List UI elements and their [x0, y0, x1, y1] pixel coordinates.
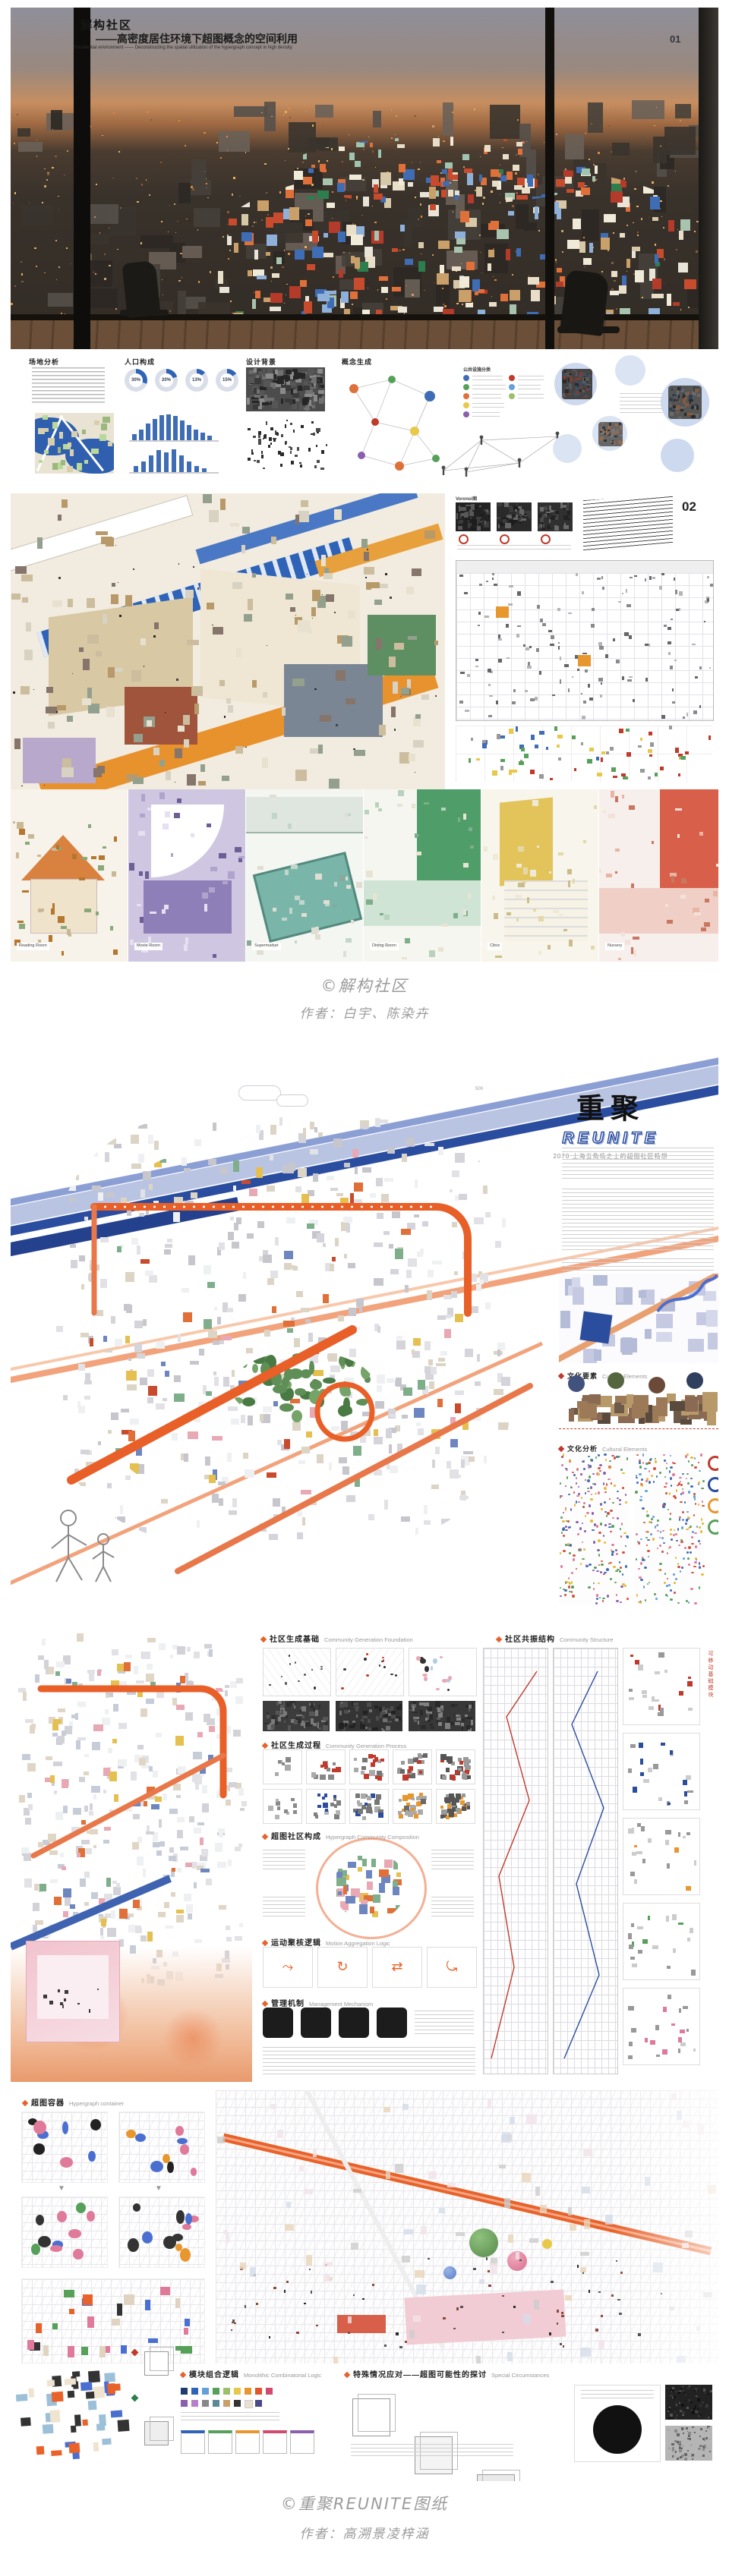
site-map: [35, 413, 114, 474]
growth-sequence-row: [263, 1789, 475, 1824]
section-cultural-analysis: 文化分析: [567, 1445, 598, 1453]
site-text: [32, 367, 105, 404]
project1-board-1[interactable]: 解构社区 ——高密度居住环境下超图概念的空间利用 Residential env…: [11, 8, 718, 486]
texture-tile: [665, 2426, 712, 2461]
gallery-page: 解构社区 ——高密度居住环境下超图概念的空间利用 Residential env…: [0, 0, 729, 2576]
dot-map-2: [635, 1453, 705, 1604]
annotation-stack: [623, 1648, 702, 2073]
donut-15: 15%: [216, 369, 238, 392]
pink-room-vignette: [26, 1941, 120, 2042]
dot-graph-tile: [263, 1648, 331, 1696]
special-cube-tiles: [345, 2388, 535, 2461]
strip-section-concept: 概念生成: [342, 358, 372, 366]
container-step: [21, 2197, 108, 2268]
fiber-texture: [583, 496, 673, 550]
window-mullion: [545, 8, 554, 349]
page-number: 02: [682, 499, 696, 515]
voronoi-label: Voronoi图: [456, 495, 477, 502]
project2-board-3[interactable]: 超图容器Hypergraph container ▼ ▼: [11, 2090, 718, 2481]
interior-panorama: [216, 2090, 718, 2363]
analysis-panel: Voronoi图 02: [450, 493, 718, 789]
project1-caption-title: ©解构社区: [0, 974, 729, 997]
vignette-clinic: Clinic: [481, 789, 598, 962]
age-bar-chart-1: [129, 413, 219, 442]
header-community-structure: 社区共振结构: [505, 1636, 555, 1644]
growth-sequence-row: [263, 1749, 475, 1784]
response-card: [574, 2385, 661, 2462]
dusk-photo: 解构社区 ——高密度居住环境下超图概念的空间利用 Residential env…: [11, 8, 718, 349]
axon-with-watercolor: [11, 1628, 252, 2082]
intro-text: [562, 1148, 714, 1181]
icon-rows: [456, 726, 712, 782]
vignette-dining-room: Dining Room: [364, 789, 481, 962]
window-mullion: [74, 8, 90, 349]
board1-subtitle-en: Residential environment —— Deconstructin…: [74, 46, 292, 50]
motion-tiles: ⤳ ↻ ⇄ ⤿: [263, 1947, 475, 1988]
dot-graph-tile: [336, 1648, 404, 1696]
header-generation-foundation: 社区生成基础: [270, 1636, 320, 1644]
dot-graph-tile: [409, 1648, 477, 1696]
donut-30: 30%: [125, 369, 147, 392]
page-number: 01: [670, 33, 680, 45]
project2-caption-authors: 作者：高溯景凌梓涵: [0, 2523, 729, 2542]
strip-section-site: 场地分析: [29, 358, 59, 366]
facility-legend: 公共设施分类: [463, 366, 547, 427]
module-cube-icon: [144, 2351, 169, 2376]
strip-section-population: 人口构成: [125, 358, 155, 366]
project2-caption-title: ©重聚REUNITE图纸: [0, 2492, 729, 2515]
sketch-figures: [38, 1504, 129, 1586]
board1-subtitle: ——高密度居住环境下超图概念的空间利用: [96, 31, 298, 46]
isometric-illustration: [11, 493, 445, 789]
header-community-composition: 超图社区构成: [271, 1833, 321, 1841]
container-step: [118, 2197, 205, 2268]
texture-tile: [665, 2385, 712, 2420]
analysis-strip: 场地分析 人口构成 30% 20% 13% 15%: [11, 349, 718, 486]
module-cluster: [12, 2367, 132, 2464]
label-special-circumstances: 特殊情况应对——超图可能性的探讨: [353, 2371, 487, 2379]
composition-diagram: [263, 1842, 475, 1930]
header-hypergraph-container: 超图容器: [31, 2099, 65, 2108]
strip-section-background: 设计背景: [246, 358, 276, 366]
module-row: [181, 2430, 340, 2453]
molecule-network: [547, 355, 718, 480]
container-step: [118, 2112, 205, 2183]
label-combinatorial-logic: 模块组合逻辑: [189, 2371, 239, 2379]
donut-20: 20%: [155, 369, 178, 392]
city-montage: [559, 1380, 718, 1434]
donut-13: 13%: [185, 369, 208, 392]
hypergraph-axon: 500: [26, 1085, 550, 1586]
tower-diagram: [483, 1648, 548, 2074]
vignette-movie-room: Movie Room: [128, 789, 245, 962]
project1-board-2[interactable]: Voronoi图 02: [11, 493, 718, 962]
container-step: [21, 2112, 108, 2183]
context-photo: [246, 367, 325, 411]
container-cluster: [21, 2278, 205, 2363]
module-cube-icon: [144, 2421, 169, 2445]
module-legend: [181, 2388, 333, 2426]
project2-board-1[interactable]: 重聚 REUNITE 2070 上海五角场之上的超图社区畅想 500: [11, 1055, 718, 1619]
project1-caption-authors: 作者：白宇、陈染卉: [0, 1003, 729, 1022]
vignette-reading-room: Reading Room: [11, 789, 128, 962]
board1-title: 解构社区: [80, 17, 132, 33]
site-map-panel: [559, 1274, 718, 1363]
dot-map-1: [559, 1453, 629, 1604]
management-icons: [263, 2008, 475, 2041]
side-label: 可移动基础模块: [706, 1651, 714, 1699]
tower-diagram: [553, 1648, 618, 2074]
section-vignettes: Reading Room Movie Room Supermarket Dini…: [11, 789, 718, 962]
project2-board-2[interactable]: 社区生成基础Community Generation Foundation 社区…: [11, 1628, 718, 2082]
vignette-supermarket: Supermarket: [246, 789, 363, 962]
age-bar-chart-2: [129, 446, 219, 474]
vignette-nursery: Nursery: [599, 789, 718, 962]
analysis-table: [456, 560, 714, 721]
figure-grid: [246, 419, 330, 472]
